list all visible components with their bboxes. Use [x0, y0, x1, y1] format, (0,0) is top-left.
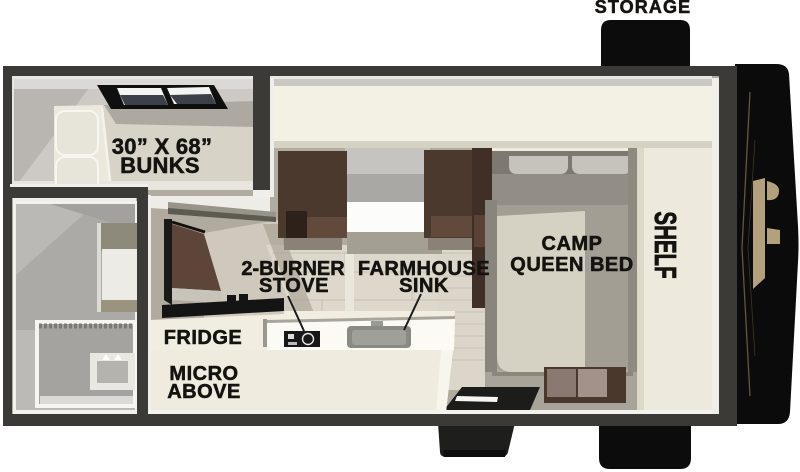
svg-text:STORAGE: STORAGE	[595, 0, 691, 17]
svg-text:SHELF: SHELF	[648, 211, 683, 278]
svg-text:FRIDGE: FRIDGE	[164, 327, 243, 349]
svg-text:QUEEN BED: QUEEN BED	[510, 254, 633, 276]
svg-text:STOVE: STOVE	[259, 275, 329, 297]
svg-text:ABOVE: ABOVE	[167, 381, 241, 403]
svg-text:CAMP: CAMP	[542, 233, 603, 255]
svg-text:BUNKS: BUNKS	[120, 153, 200, 178]
svg-text:SINK: SINK	[399, 275, 449, 297]
